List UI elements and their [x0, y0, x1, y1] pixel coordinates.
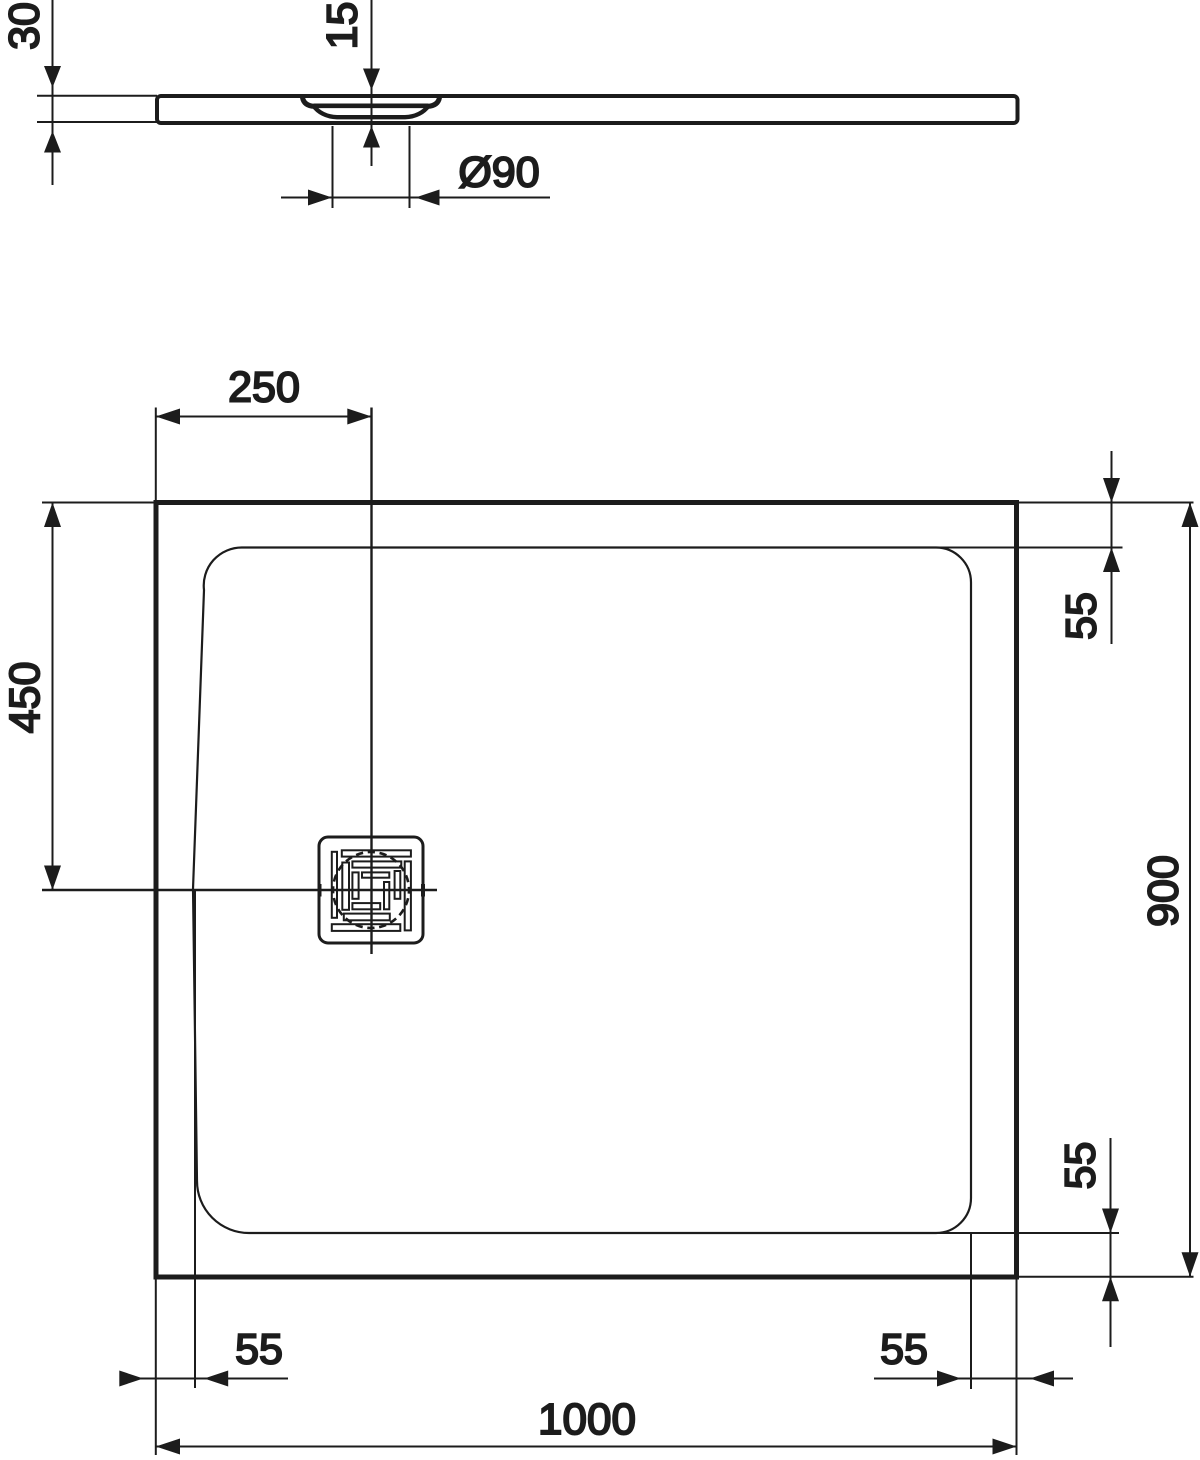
svg-text:55: 55	[235, 1325, 283, 1373]
svg-text:Ø90: Ø90	[458, 148, 539, 196]
svg-text:30: 30	[0, 2, 48, 50]
svg-text:55: 55	[1056, 1142, 1104, 1190]
svg-text:55: 55	[1057, 592, 1105, 640]
svg-text:55: 55	[880, 1325, 928, 1373]
svg-text:450: 450	[1, 662, 49, 734]
svg-text:1000: 1000	[538, 1395, 636, 1444]
svg-text:250: 250	[228, 363, 300, 411]
svg-text:15: 15	[318, 2, 366, 50]
svg-text:900: 900	[1139, 855, 1187, 927]
